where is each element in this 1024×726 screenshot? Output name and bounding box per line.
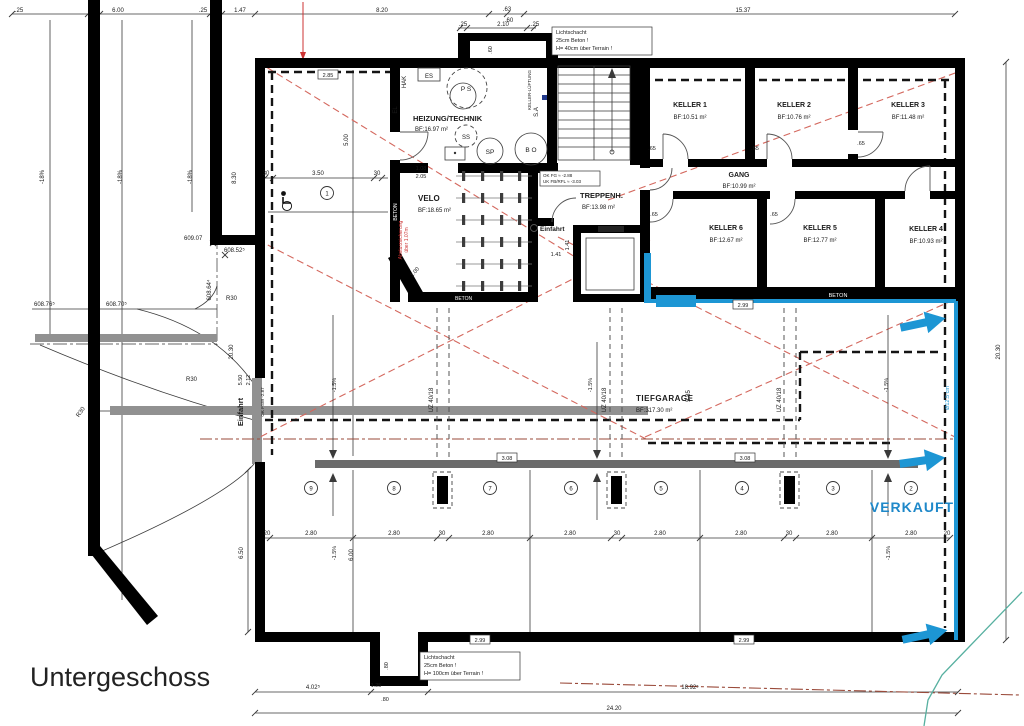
boxed-dimension-tags: 2.85 2.99 3.08 3.08 2.99 2.99: [318, 70, 755, 644]
room-area-gang: BF:10.99 m²: [722, 184, 755, 190]
level-label: 608.64⁴: [206, 279, 213, 300]
room-label-keller5: KELLER 5: [803, 225, 837, 232]
blue-arrow: [898, 307, 948, 338]
marker-square: [542, 95, 547, 100]
room-area-heizung: BF:16.97 m²: [415, 127, 448, 133]
dim: .65: [857, 141, 865, 147]
beton-label: BETON: [455, 296, 473, 302]
note-line: 25cm Beton !: [556, 38, 589, 44]
dim: 1.47: [234, 8, 246, 14]
dim: 5.00: [344, 134, 350, 146]
slope-garage-label: -1.5%: [588, 378, 594, 392]
dim: 2.80: [654, 531, 666, 537]
room-area-keller5: BF:12.77 m²: [803, 238, 836, 244]
dim: 2.80: [305, 531, 317, 537]
okfsw-note: OK FSW -2.87: [260, 387, 265, 417]
site-boundary-line: [924, 592, 1022, 726]
slope-garage-label: -1.5%: [886, 546, 892, 560]
dim: 20.30: [229, 344, 235, 360]
dim: .65: [751, 146, 759, 152]
dim: 8.20: [376, 8, 388, 14]
dim: 24.20: [606, 706, 622, 712]
column-post: [437, 476, 448, 504]
beam-label-uz: UZ 40/18: [777, 387, 783, 412]
verkauft-label: VERKAUFT: [870, 499, 954, 515]
note-line: OK FG ≈ -2.88: [543, 173, 573, 178]
equipment-hak: HAK: [402, 76, 408, 88]
slab-edge-dashed: [265, 72, 950, 628]
equipment-ps: P S: [461, 86, 472, 93]
einfahrt-hall-label: Einfahrt: [540, 226, 565, 233]
room-label-velo: VELO: [418, 194, 440, 203]
note-line: H= 40cm über Terrain !: [556, 46, 612, 52]
dim: 1.41: [551, 252, 562, 258]
room-label-keller1: KELLER 1: [673, 102, 707, 109]
room-area-velo: BF:18.65 m²: [418, 208, 451, 214]
dim: 30: [263, 171, 270, 177]
boxed-dim: 3.08: [740, 456, 751, 462]
dim: 5.85: [686, 390, 692, 402]
slope-garage-label: -1.5%: [884, 378, 890, 392]
equipment-lueftung: KELLER-LÜFTUNG: [526, 70, 532, 111]
dim: .25: [531, 22, 540, 28]
slope-ramp-label: -18%: [40, 169, 46, 184]
room-area-keller4: BF:10.93 m²: [909, 239, 942, 245]
dim: .63: [503, 7, 512, 13]
dim: 20: [944, 531, 951, 537]
dim: 30: [374, 171, 381, 177]
dim: 18.92⁵: [681, 684, 699, 691]
beton-label: BETON: [393, 203, 399, 221]
property-lines: [200, 439, 1020, 695]
beam-lines-uz: [437, 308, 796, 460]
dim: 20.30: [996, 344, 1002, 360]
room-label-keller4: KELLER 4: [909, 226, 943, 233]
dim: 30: [786, 531, 793, 537]
dim: 1.00: [409, 266, 420, 278]
level-label: 609.07: [184, 236, 203, 242]
column-post: [611, 476, 622, 504]
equipment-labels: P S SS SP B O ES EL HAK S.A KELLER-LÜFTU…: [393, 70, 540, 156]
radius-label: R30: [226, 296, 238, 302]
lichtschacht-note-top: Lichtschacht 25cm Beton ! H= 40cm über T…: [552, 27, 652, 55]
slope-garage-label: -1.5%: [332, 378, 338, 392]
dim: 30: [439, 531, 446, 537]
dim: 6.00: [112, 8, 124, 14]
dim: .65: [648, 146, 656, 152]
note-line: UK FB/RFL ≈ -3.03: [543, 179, 582, 184]
boxed-dim: 2.99: [475, 638, 486, 644]
dim: 20: [264, 531, 271, 537]
blue-arrow: [898, 447, 947, 475]
beam-label-uz: UZ 40/18: [602, 387, 608, 412]
note-line: H= 100cm über Terrain !: [424, 671, 484, 677]
staircase: [558, 66, 630, 160]
boxed-dim: 3.08: [502, 456, 513, 462]
dim: .80: [384, 662, 390, 670]
room-label-keller6: KELLER 6: [709, 225, 743, 232]
dim: .60: [488, 46, 494, 54]
dim: .80: [381, 697, 389, 703]
equipment-sp: SP: [486, 149, 495, 156]
dim: .65: [650, 212, 658, 218]
boxed-dim: 2.99: [738, 303, 749, 309]
dim: 1.41: [565, 240, 571, 251]
dim: 2.80: [482, 531, 494, 537]
pipe-diameter-note: Ø12.5 cm: [945, 386, 951, 410]
door-arcs: [400, 132, 930, 224]
dim: 1.25: [371, 683, 382, 689]
room-area-keller6: BF:12.67 m²: [709, 238, 742, 244]
dim: 2.80: [388, 531, 400, 537]
note-line: Lichtschacht: [556, 30, 587, 36]
accessible-parking-symbol: [281, 191, 292, 210]
room-label-keller3: KELLER 3: [891, 102, 925, 109]
ramp-retaining-bands: [35, 334, 648, 464]
dim: 2.05: [416, 174, 427, 180]
stair-arrowhead: [608, 68, 616, 78]
beam-label-uz: UZ 40/18: [429, 387, 435, 412]
lichtschacht-note-bottom: Lichtschacht 25cm Beton ! H= 100cm über …: [420, 652, 520, 680]
drawing-title: Untergeschoss: [30, 662, 210, 692]
slope-garage-label: -1.5%: [332, 546, 338, 560]
slope-ramp-label: -18%: [118, 169, 124, 184]
note-line: Lichtschacht: [424, 655, 455, 661]
dimension-lines: [9, 11, 1009, 716]
equipment-ss: SS: [462, 135, 470, 141]
room-area-tiefgarage: BF:317.30 m²: [636, 408, 672, 414]
room-area-keller2: BF:10.76 m²: [777, 115, 810, 121]
dim: .65: [770, 212, 778, 218]
level-label: 608.76⁵: [34, 301, 55, 308]
dim: 2.80: [905, 531, 917, 537]
dim: 2.12: [246, 375, 252, 386]
slope-ramp-label: -18%: [188, 169, 194, 184]
room-label-heizung: HEIZUNG/TECHNIK: [413, 114, 483, 123]
boxed-dim: 2.99: [739, 638, 750, 644]
room-label-gang: GANG: [729, 172, 751, 179]
level-label: 608.52⁵: [224, 247, 245, 254]
equipment-sa: S.A: [534, 107, 540, 117]
floorplan-drawing: 1 9 8 7 6 5 4 3 2 2.85 2.99 3.08 3.08 2.…: [0, 0, 1024, 726]
equipment-es: ES: [425, 74, 433, 80]
axis-lines: [30, 212, 650, 411]
dim: 3.50: [312, 171, 324, 177]
equipment-el: EL: [393, 106, 399, 114]
radius-label: R30: [186, 377, 198, 383]
dim: 30: [614, 531, 621, 537]
dim: 4.02⁵: [306, 684, 321, 691]
level-note-box: OK FG ≈ -2.88 UK FB/RFL ≈ -3.03: [540, 171, 600, 186]
column-post: [784, 476, 795, 504]
dim: 5.50: [238, 375, 244, 386]
room-label-keller2: KELLER 2: [777, 102, 811, 109]
dim: .25: [199, 8, 208, 14]
dim: 2.80: [826, 531, 838, 537]
radius-label: R30: [76, 406, 88, 419]
elevator-door: [598, 226, 624, 232]
blue-pipe-route: [644, 253, 956, 650]
equipment-bo: B O: [525, 147, 536, 154]
einfahrt-ramp-label: Einfahrt: [236, 397, 245, 426]
absturz-note-line2: über 1.07m: [404, 227, 410, 252]
room-label-tiefgarage: TIEFGARAGE: [636, 394, 694, 403]
dim: .25: [15, 8, 24, 14]
dim: 2.80: [564, 531, 576, 537]
dimension-ticks: [9, 11, 1009, 716]
dim: 8.30: [232, 172, 238, 184]
floorplan-untergeschoss: 1 9 8 7 6 5 4 3 2 2.85 2.99 3.08 3.08 2.…: [0, 0, 1024, 726]
dim: .25: [459, 22, 468, 28]
note-line: 25cm Beton !: [424, 663, 457, 669]
beton-label: BETON: [829, 293, 848, 299]
dim: 6.50: [239, 547, 245, 559]
level-label: 608.70⁵: [106, 301, 127, 308]
dim: 15.37: [735, 8, 751, 14]
room-area-treppenhaus: BF:13.98 m²: [582, 205, 615, 211]
room-label-treppenhaus: TREPPENH.: [580, 191, 623, 200]
dim: 2.10: [497, 22, 509, 28]
dim: 1.08: [416, 166, 427, 172]
dim: 6.00: [349, 549, 355, 561]
room-area-keller1: BF:10.51 m²: [673, 115, 706, 121]
boxed-dim: 2.85: [323, 73, 334, 79]
bike-racks: [456, 171, 532, 291]
dim: 2.80: [735, 531, 747, 537]
room-area-keller3: BF:11.48 m²: [892, 115, 925, 121]
wheel-stop-bar: [315, 460, 918, 468]
